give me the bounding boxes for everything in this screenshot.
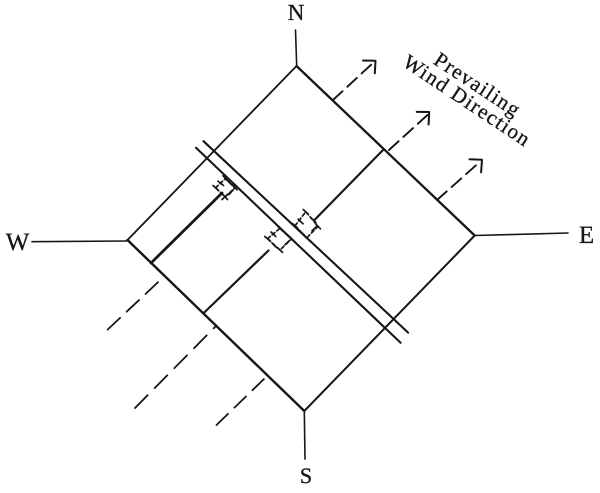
svg-text:W: W <box>6 229 30 256</box>
svg-text:S: S <box>300 463 312 488</box>
svg-text:N: N <box>288 0 305 25</box>
svg-text:E: E <box>579 222 594 249</box>
